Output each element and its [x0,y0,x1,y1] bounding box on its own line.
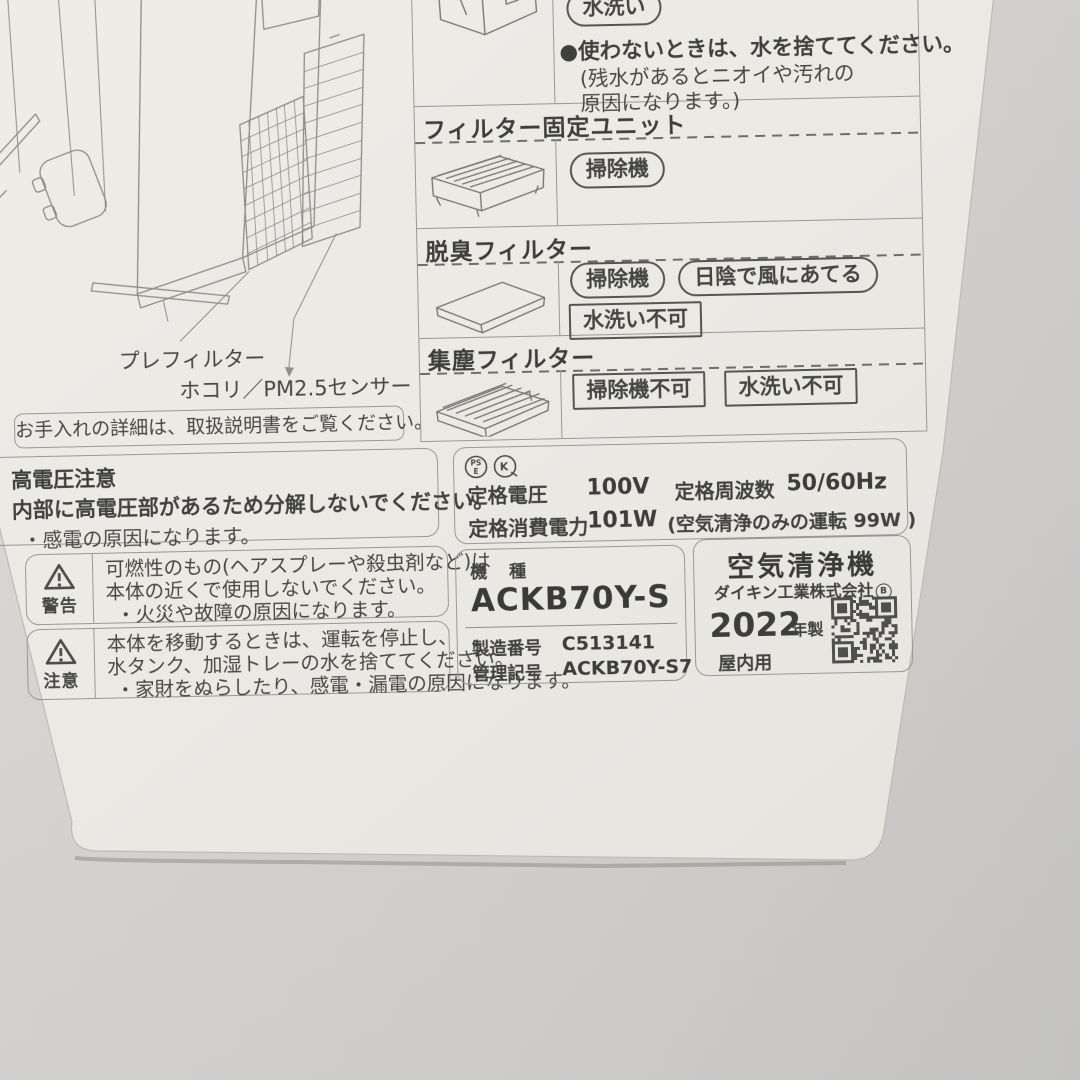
cell-divider [555,139,558,225]
vacuum-method-badge: 掃除機 [570,261,666,299]
cell-divider [558,261,561,335]
caution-box: 注意 本体を移動するときは、運転を停止し、 水タンク、加湿トレーの水を捨ててくだ… [26,621,450,701]
code-label: 管理記号 [472,660,543,686]
warning-icon-cell: 警告 [26,554,94,624]
qr-code [831,596,898,663]
voltage-label: 定格電圧 [467,478,548,509]
no-water-wash-tag: 水洗い不可 [569,301,703,340]
prefilter-part-label: プレフィルター [118,342,265,375]
air-dry-method-badge: 日陰で風にあてる [678,256,878,296]
k-mark-icon: K [494,456,517,477]
row-title-filter-fixing-unit: フィルター固定ユニット [423,105,687,145]
serial-value: C513141 [562,631,656,655]
dust-filter-illustration [426,373,557,438]
cell-divider [551,0,556,103]
label-content: プレフィルター ホコリ／PM2.5センサー お手入れの詳細は、取扱説明書をご覧く… [0,0,1020,925]
high-voltage-caution-box: 高電圧注意 内部に高電圧部があるため分解しないでください。 ・感電の原因になりま… [0,448,439,547]
vacuum-method-badge: 掃除機 [569,151,665,189]
power-note: (空気清浄のみの運転 99W ) [667,505,917,537]
warning-triangle-icon [45,637,78,666]
svg-text:K: K [500,460,509,473]
brand-box: 空気清浄機 ダイキン工業株式会社B 2022 年製 屋内用 [693,535,914,677]
manufacture-year: 2022 [709,604,802,645]
row-title-dust-filter: 集塵フィルター [427,338,595,376]
filter-fixing-unit-illustration [421,145,553,224]
warning-box: 警告 可燃性のもの(ヘアスプレーや殺虫剤など)は 本体の近くで使用しないでくださ… [25,546,449,626]
filter-care-table: 水洗い ●使わないときは、水を捨ててください。 (残水があるとニオイや汚れの 原… [410,0,927,442]
row-title-deodorizing-filter: 脱臭フィルター [425,229,593,267]
cell-divider [560,370,562,438]
washable-badge: 水洗い [566,0,662,27]
humidify-tray-illustration [417,0,549,56]
serial-label: 製造番号 [472,635,543,661]
manufacture-year-suffix: 年製 [791,616,824,641]
photo-of-appliance-label: プレフィルター ホコリ／PM2.5センサー お手入れの詳細は、取扱説明書をご覧く… [0,0,1080,1080]
model-name: ACKB70Y-S [456,579,685,620]
no-water-wash-tag: 水洗い不可 [724,368,858,407]
indoor-use-label: 屋内用 [718,649,773,676]
warning-triangle-icon [43,562,76,591]
power-label: 定格消費電力 [468,511,589,543]
ratings-box: PS E K 定格電圧 100V 定格周波数 50/60Hz 定格消費電力 10… [453,438,909,544]
warning-label: 警告 [42,591,79,617]
no-vacuum-tag: 掃除機不可 [572,371,706,410]
frequency-label: 定格周波数 [674,474,775,505]
svg-text:E: E [473,467,478,476]
model-divider [465,623,677,628]
bullet-dot: ● [559,40,578,65]
deodorizing-filter-illustration [424,267,555,336]
model-label: 機 種 [470,557,534,583]
power-value: 101W [587,507,658,533]
frequency-value: 50/60Hz [786,469,887,496]
pse-mark-icon: PS E K [464,453,523,480]
voltage-value: 100V [586,474,649,500]
code-value: ACKB70Y-S7 [562,655,692,680]
model-box: 機 種 ACKB70Y-S 製造番号 C513141 管理記号 ACKB70Y-… [455,545,688,686]
caution-label: 注意 [43,666,80,692]
caution-icon-cell: 注意 [27,629,95,699]
dust-pm25-sensor-part-label: ホコリ／PM2.5センサー [179,370,412,405]
